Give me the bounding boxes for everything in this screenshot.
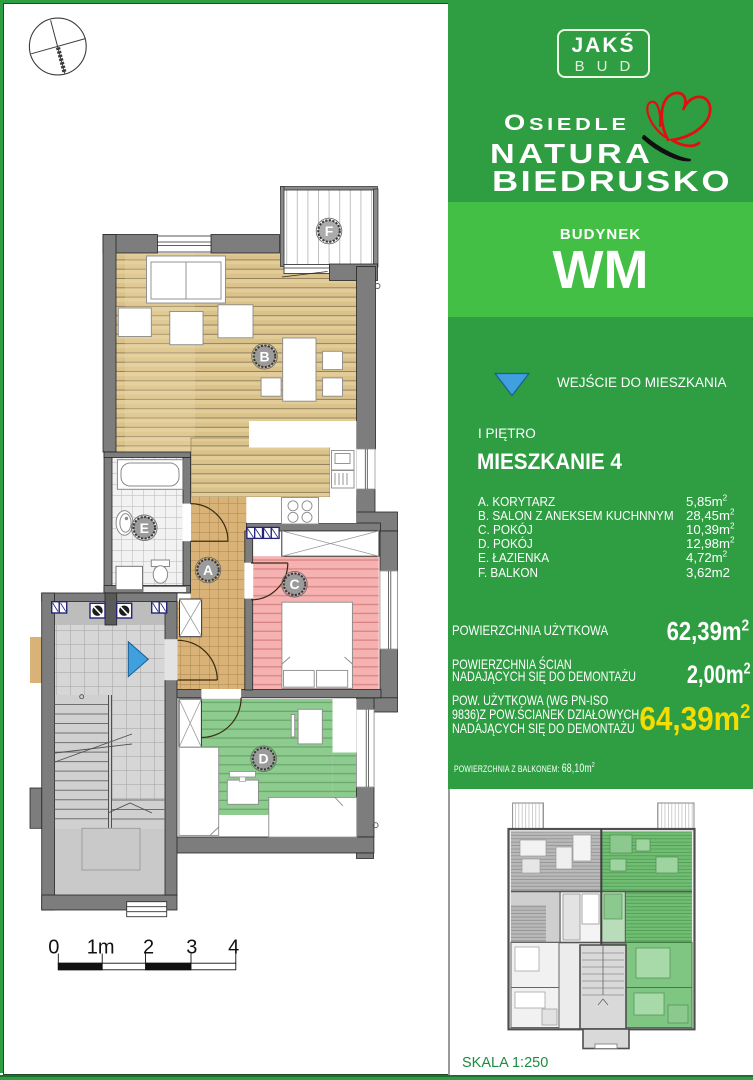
- svg-text:4: 4: [228, 936, 239, 958]
- svg-text:F: F: [325, 223, 334, 239]
- svg-text:2: 2: [143, 936, 154, 958]
- svg-text:0: 0: [48, 936, 59, 958]
- svg-text:A: A: [203, 562, 213, 578]
- svg-text:D: D: [259, 751, 269, 767]
- svg-text:C: C: [289, 576, 299, 592]
- svg-text:E: E: [140, 520, 149, 536]
- svg-text:3: 3: [186, 936, 197, 958]
- svg-text:B: B: [259, 348, 269, 364]
- svg-text:1m: 1m: [87, 936, 115, 958]
